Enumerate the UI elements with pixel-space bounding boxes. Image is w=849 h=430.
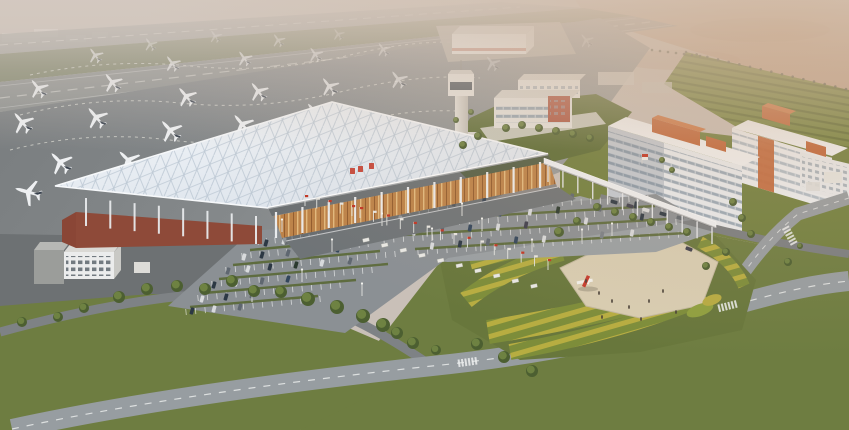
airport-aerial-rendering xyxy=(0,0,849,430)
warm-light-overlay xyxy=(0,0,849,430)
scene-canvas xyxy=(0,0,849,430)
atmosphere xyxy=(0,0,849,430)
